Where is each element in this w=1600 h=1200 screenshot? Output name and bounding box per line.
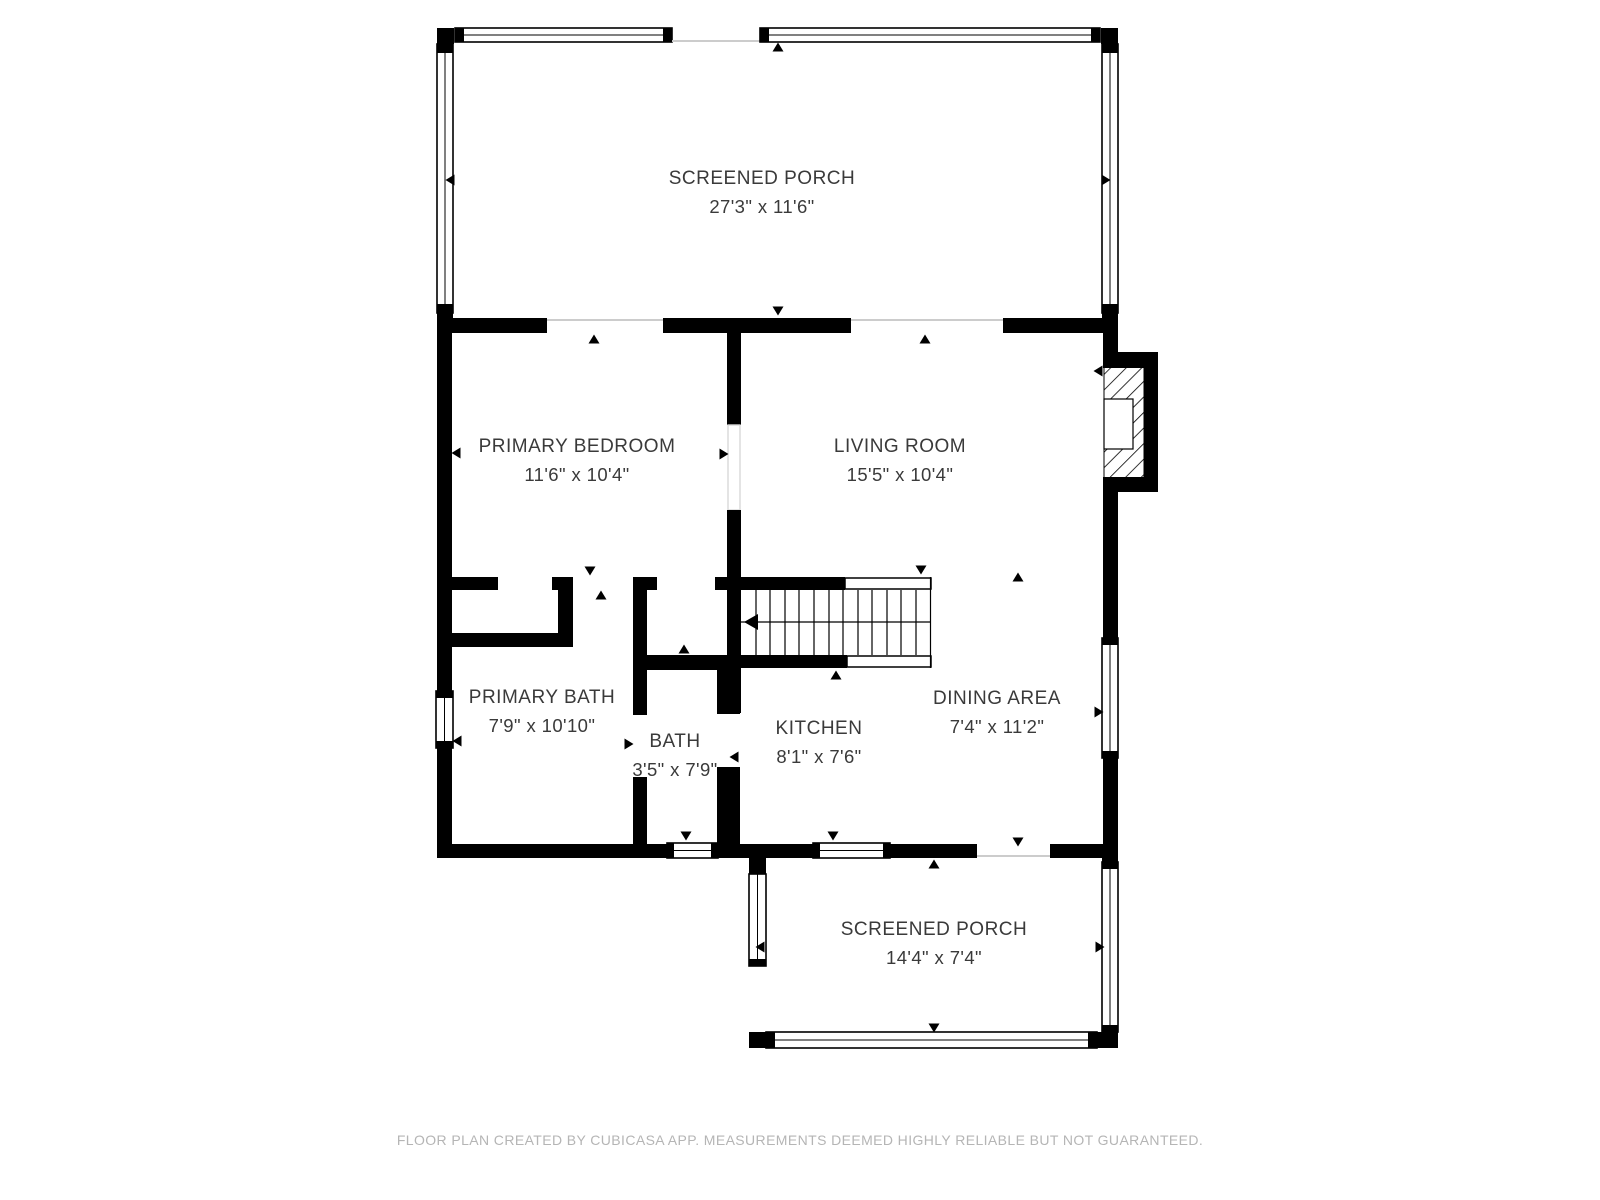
opening-arrows	[446, 43, 1111, 1033]
window-icon	[749, 874, 766, 966]
window-icon	[667, 843, 718, 858]
house-bottom-wall	[437, 843, 1118, 858]
top-porch-walls	[437, 28, 1118, 313]
interior-walls	[452, 333, 741, 844]
window-icon	[1102, 638, 1118, 758]
staircase	[741, 577, 932, 668]
window-icon	[766, 1032, 1097, 1048]
footer-disclaimer: FLOOR PLAN CREATED BY CUBICASA APP. MEAS…	[0, 1132, 1600, 1148]
floorplan-drawing	[0, 0, 1600, 1200]
fireplace-icon	[1103, 352, 1158, 492]
window-icon	[813, 843, 890, 858]
window-icon	[760, 28, 1100, 42]
house-left-wall	[436, 318, 453, 858]
floorplan: SCREENED PORCH 27'3" x 11'6" PRIMARY BED…	[0, 0, 1600, 1200]
window-icon	[455, 28, 672, 42]
bottom-porch-walls	[749, 858, 1118, 1048]
window-icon	[436, 691, 453, 748]
house-top-wall	[437, 313, 1118, 333]
